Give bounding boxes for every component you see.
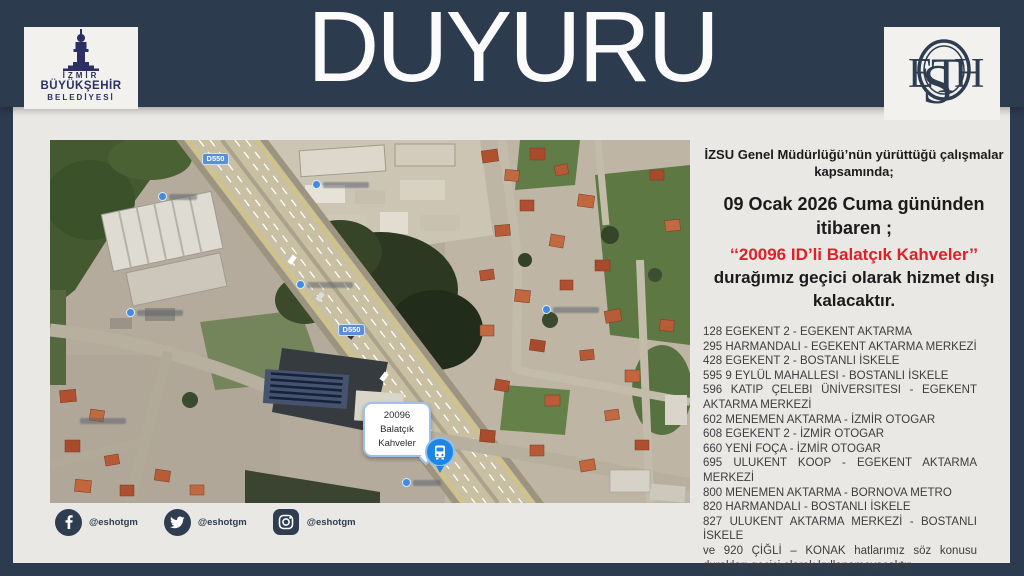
announcement-closing: ve 920 ÇİĞLİ – KONAK hatlarımız söz konu… <box>703 544 977 573</box>
announcement-intro: İZSU Genel Müdürlüğü’nün yürüttüğü çalış… <box>703 146 1005 180</box>
eshot-logo: S E T H <box>884 27 1000 120</box>
svg-text:H: H <box>954 51 984 97</box>
instagram-icon <box>273 509 300 536</box>
route-line: 820 HARMANDALI - BOSTANLI İSKELE <box>703 500 977 515</box>
municipality-logo: İZMİR BÜYÜKŞEHİR BELEDİYESİ <box>24 27 138 109</box>
svg-text:E: E <box>908 51 934 97</box>
map-poi-label <box>158 192 197 201</box>
twitter-icon <box>164 509 191 536</box>
route-line: 695 ULUKENT KOOP - EGEKENT AKTARMA MERKE… <box>703 456 977 485</box>
eshot-monogram-icon: S E T H <box>884 27 1000 120</box>
road-shield-d550-top: D550 <box>202 153 229 165</box>
satellite-map: D550 D550 20096 Balatçık Kahveler <box>50 140 690 503</box>
bus-stop-id: 20096 <box>365 409 429 423</box>
route-line: 660 YENİ FOÇA - İZMİR OTOGAR <box>703 442 977 457</box>
route-line: 595 9 EYLÜL MAHALLESI - BOSTANLI İSKELE <box>703 369 977 384</box>
route-list: 128 EGEKENT 2 - EGEKENT AKTARMA295 HARMA… <box>703 325 977 544</box>
municipality-logo-line3: BELEDİYESİ <box>47 93 115 103</box>
facebook-icon <box>55 509 82 536</box>
clock-tower-icon <box>24 27 138 71</box>
facebook-handle: @eshotgm <box>89 517 138 528</box>
map-poi-label <box>80 418 126 424</box>
map-poi-label <box>126 308 183 317</box>
bus-icon <box>425 437 455 467</box>
poi-pin-icon <box>158 192 167 201</box>
poi-pin-icon <box>126 308 135 317</box>
map-poi-label <box>296 280 353 289</box>
route-line: 827 ULUKENT AKTARMA MERKEZİ - BOSTANLI İ… <box>703 515 977 544</box>
poi-pin-icon <box>542 305 551 314</box>
social-row: @eshotgm @eshotgm @eshotgm <box>55 506 382 538</box>
route-line: 602 MENEMEN AKTARMA - İZMİR OTOGAR <box>703 413 977 428</box>
municipality-logo-line2: BÜYÜKŞEHİR <box>40 80 121 93</box>
bus-stop-callout: 20096 Balatçık Kahveler <box>363 402 431 457</box>
bus-stop-name-line2: Kahveler <box>365 437 429 451</box>
municipality-logo-line1: İZMİR <box>63 71 100 80</box>
map-poi-label <box>542 305 599 314</box>
announcement-date-line: 09 Ocak 2026 Cuma gününden itibaren ; <box>703 192 1005 240</box>
instagram-handle: @eshotgm <box>307 517 356 528</box>
bus-stop-marker <box>425 437 455 467</box>
route-line: 608 EGEKENT 2 - İZMİR OTOGAR <box>703 427 977 442</box>
marker-tail <box>436 466 444 473</box>
route-line: 428 EGEKENT 2 - BOSTANLI İSKELE <box>703 354 977 369</box>
route-line: 128 EGEKENT 2 - EGEKENT AKTARMA <box>703 325 977 340</box>
route-line: 596 KATIP ÇELEBI ÜNİVERSITESI - EGEKENT … <box>703 383 977 412</box>
bus-stop-name-line1: Balatçık <box>365 423 429 437</box>
announcement-effect-line: durağımız geçici olarak hizmet dışı kala… <box>703 266 1005 312</box>
twitter-handle: @eshotgm <box>198 517 247 528</box>
road-shield-d550-mid: D550 <box>338 324 365 336</box>
announcement-panel: İZSU Genel Müdürlüğü’nün yürüttüğü çalış… <box>703 146 1005 573</box>
page-title: DUYURU <box>0 0 1024 102</box>
header-banner: DUYURU <box>0 0 1024 107</box>
poi-pin-icon <box>312 180 321 189</box>
map-poi-label <box>402 478 441 487</box>
route-line: 295 HARMANDALI - EGEKENT AKTARMA MERKEZİ <box>703 340 977 355</box>
map-poi-label <box>312 180 369 189</box>
route-line: 800 MENEMEN AKTARMA - BORNOVA METRO <box>703 486 977 501</box>
poi-pin-icon <box>296 280 305 289</box>
announcement-stop-highlight: ‘‘20096 ID’li Balatçık Kahveler’’ <box>703 244 1005 266</box>
poi-pin-icon <box>402 478 411 487</box>
